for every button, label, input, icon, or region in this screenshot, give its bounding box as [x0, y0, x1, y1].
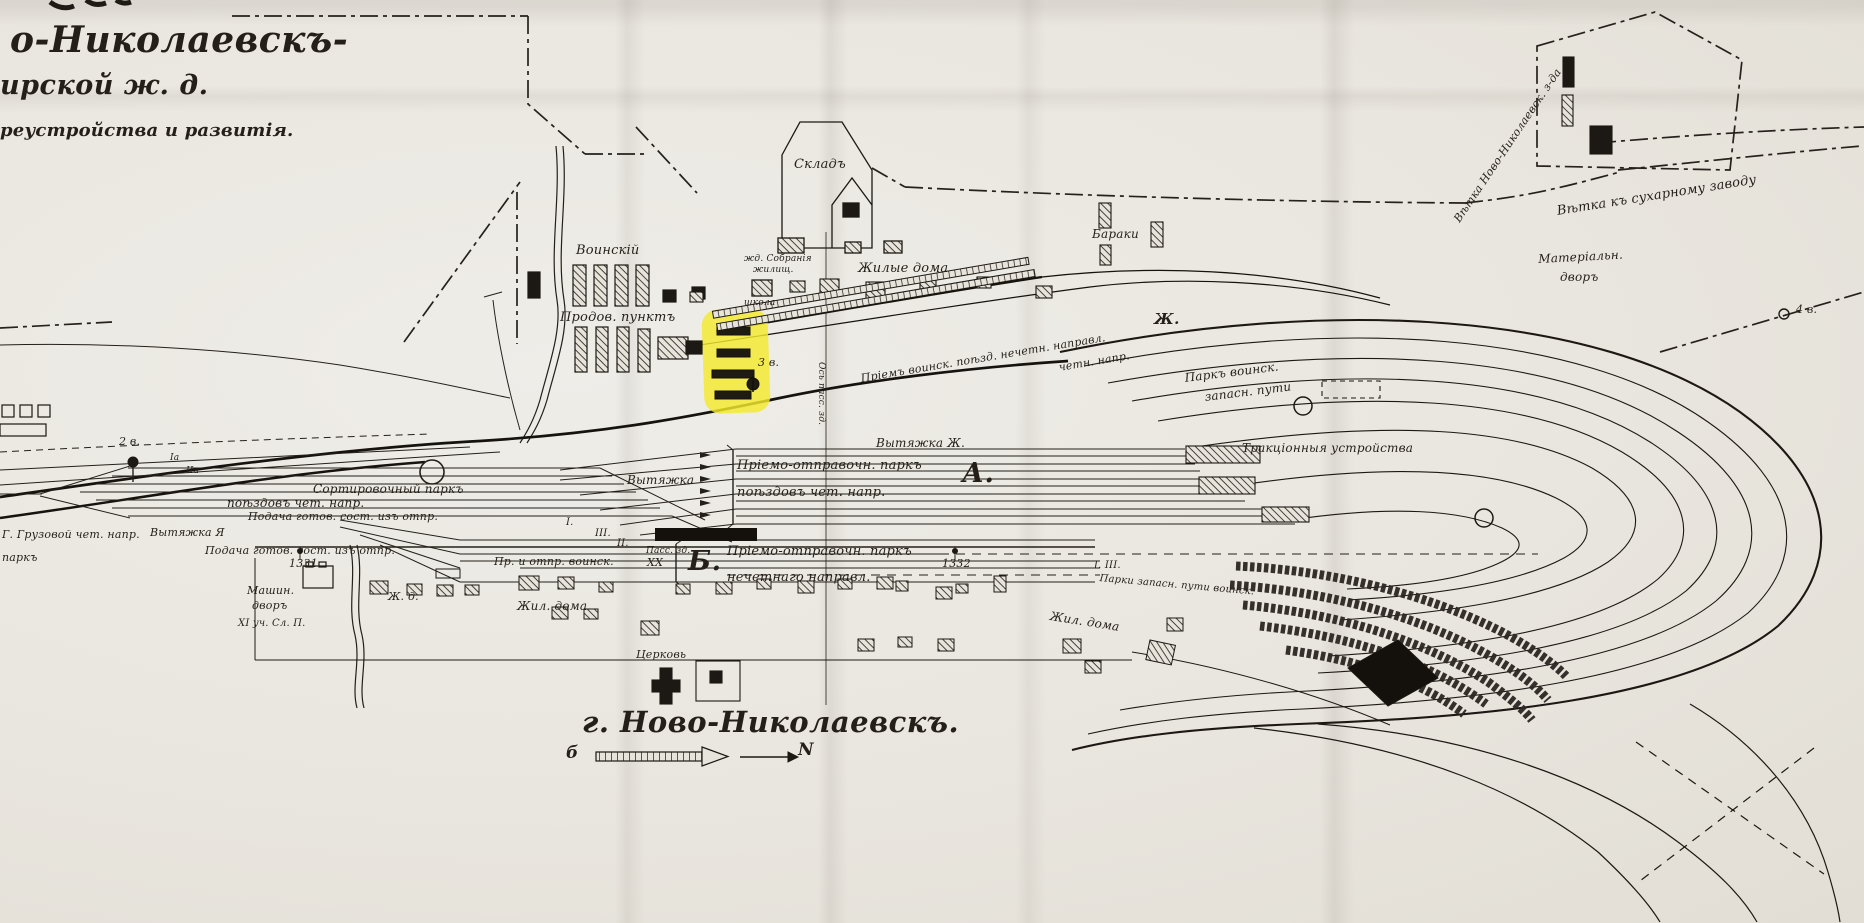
label-shkola: школа	[744, 299, 775, 308]
label-mashin: Машин.	[247, 585, 294, 596]
label-os-pass-zd: Ось пасс. зд.	[816, 362, 825, 425]
label-park-a-2: поѣздовъ чет. напр.	[737, 486, 886, 499]
title-line-2: ирской ж. д.	[0, 72, 209, 99]
label-vytyazhka-ya: Вытяжка Я	[150, 527, 225, 538]
label-gruzovoy: Г. Грузовой чет. напр.	[2, 529, 140, 540]
label-park-b-1: Пріемо-отправочн. паркъ	[727, 545, 912, 558]
scanned-map-page: о-Николаевскъ-ирской ж. д.реустройства и…	[0, 0, 1864, 923]
park-a-arrows	[700, 452, 711, 518]
label-switch-1a: Iа	[170, 454, 179, 463]
label-zh-letter: Ж.	[1154, 312, 1180, 327]
label-voinskiy: Воинскій	[576, 244, 640, 257]
main-track-lines	[0, 270, 1390, 518]
passenger-building	[655, 528, 757, 541]
label-verst-3: 3 в.	[758, 357, 779, 368]
label-zhil-doma-center: Жил. дома	[517, 600, 587, 612]
label-switch-right: I. III.	[1094, 561, 1121, 571]
title-line-1: о-Николаевскъ-	[10, 22, 348, 58]
label-pass-zd: Пасс. зд.	[646, 547, 690, 556]
label-verst-2: 2 в.	[119, 436, 140, 447]
label-sklad: Складъ	[794, 158, 846, 171]
label-park-a-1: Пріемо-отправочн. паркъ	[737, 459, 922, 472]
label-vytyazhka-zh: Вытяжка Ж.	[876, 437, 965, 449]
label-b-letter: Б.	[688, 548, 721, 575]
label-track-iii: III.	[595, 529, 611, 539]
title-line-3: реустройства и развитія.	[0, 122, 294, 140]
creek-lines	[350, 146, 565, 708]
park-a-tracks	[560, 445, 1295, 535]
factory-buildings	[1562, 57, 1612, 154]
town-houses	[370, 569, 1438, 706]
label-materialn-dvor: дворъ	[1560, 271, 1599, 283]
label-zh-d: Ж. д.	[388, 591, 419, 602]
label-podacha-1: Подача готов. сост. изъ отпр.	[248, 511, 438, 522]
label-1332: 1332	[942, 558, 971, 569]
property-boundary-lines	[0, 12, 1864, 352]
label-switch-xx: XX	[647, 557, 663, 568]
label-zhilye-doma-top: Жилые дома	[858, 262, 948, 275]
label-baraki: Бараки	[1092, 228, 1139, 240]
label-zhilishch: жилищ.	[753, 266, 794, 275]
label-sortirovochny: Сортировочный паркъ	[313, 483, 464, 495]
label-verst-4: 4 в.	[1796, 304, 1817, 315]
label-a-letter: А.	[962, 460, 994, 487]
cut-title-fragment	[50, 0, 131, 8]
church-buildings	[652, 661, 740, 704]
label-tserkov: Церковь	[636, 649, 686, 660]
label-uchastok: XI уч. Сл. П.	[238, 619, 306, 629]
factory-enclosure	[1537, 12, 1742, 170]
label-vytyazhka-center: Вытяжка	[627, 474, 694, 486]
balloon-loop-tracks	[255, 320, 1840, 922]
label-track-ii: II.	[617, 539, 629, 549]
label-mashin-dvor: дворъ	[252, 600, 287, 611]
left-edge-buildings	[0, 405, 50, 436]
label-pr-otpr-voinsk: Пр. и отпр. воинск.	[494, 556, 614, 567]
label-1331: 1331	[289, 558, 318, 569]
label-traktsionnye: Тракціонныя устройства	[1242, 442, 1413, 454]
label-compass-n: N	[798, 742, 814, 759]
label-prodov-punkt: Продов. пунктъ	[560, 311, 675, 324]
label-city: г. Ново-Николаевскъ.	[582, 708, 959, 737]
label-sort-2: поѣздовъ чет. напр.	[227, 497, 364, 509]
label-compass-b: б	[566, 745, 578, 762]
label-track-i: I.	[566, 518, 574, 528]
label-zhd-sobranie: жд. Собранія	[744, 255, 812, 264]
label-switch-2a: IIа	[186, 467, 199, 476]
north-arrow	[596, 747, 798, 766]
label-park-b-2: нечетнаго направл.	[727, 571, 871, 584]
label-park-fragment: паркъ	[2, 552, 38, 563]
label-podacha-2: Подача готов. сост. изъ отпр.	[205, 545, 395, 556]
